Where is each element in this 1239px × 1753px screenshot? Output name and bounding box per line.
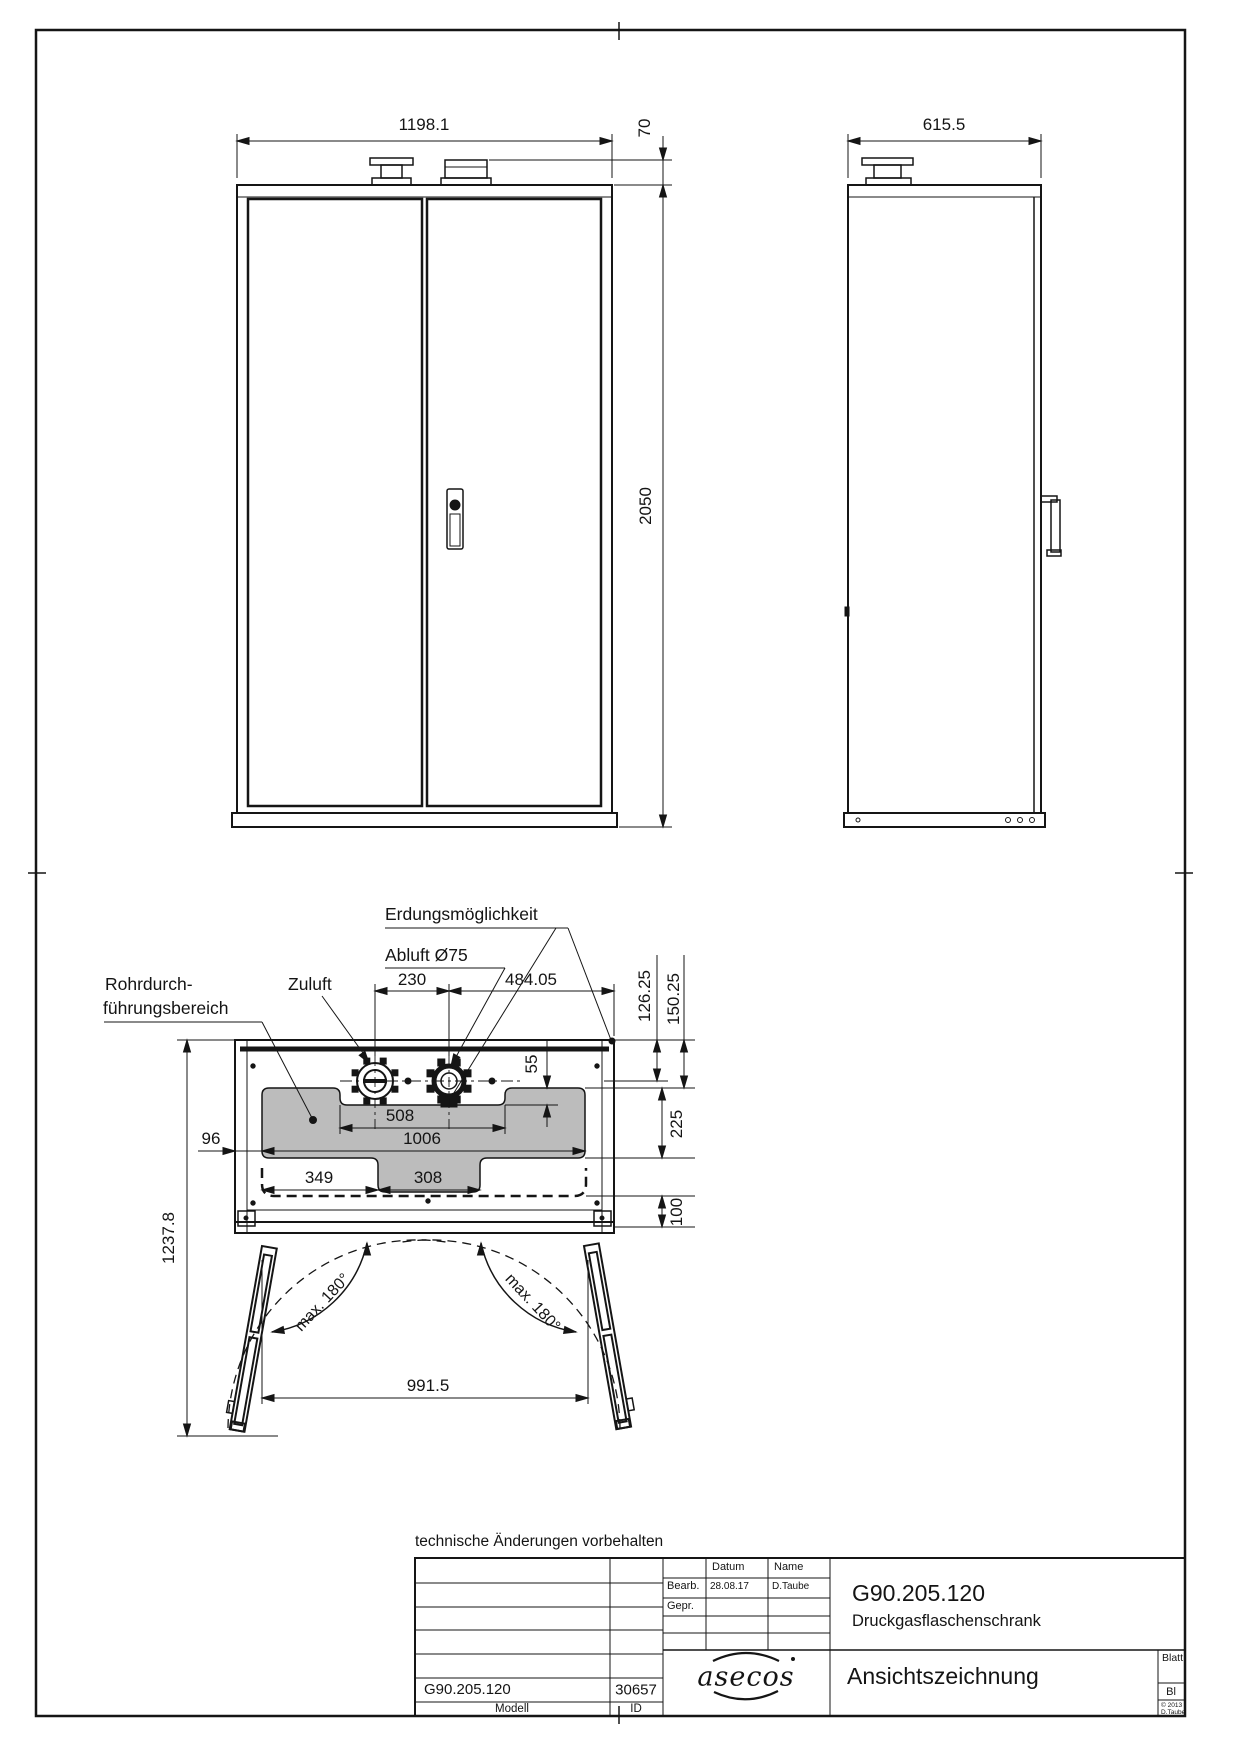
copyright-line2: D.Taube bbox=[1161, 1709, 1185, 1716]
cutout-left-dim: 349 bbox=[305, 1168, 333, 1188]
front-fitting-height-dim: 70 bbox=[635, 119, 655, 138]
back-to-area-dim: 150.25 bbox=[664, 973, 684, 1025]
checked-label: Gepr. bbox=[667, 1600, 694, 1612]
pipe-area-label-line2: führungsbereich bbox=[103, 998, 229, 1019]
product-name: Druckgasflaschenschrank bbox=[852, 1612, 1041, 1631]
duct-to-edge-dim: 484.05 bbox=[505, 970, 557, 990]
supply-label: Zuluft bbox=[288, 974, 332, 995]
drawing-type: Ansichtszeichnung bbox=[847, 1663, 1039, 1690]
side-depth-dim: 615.5 bbox=[923, 115, 966, 135]
total-depth-dim: 1237.8 bbox=[159, 1212, 179, 1264]
area-step-dim: 55 bbox=[522, 1055, 542, 1074]
cutout-width-dim: 508 bbox=[386, 1106, 414, 1126]
sheet-frame bbox=[28, 22, 1193, 1724]
created-label: Bearb. bbox=[667, 1580, 699, 1592]
model-label: Modell bbox=[495, 1703, 529, 1715]
center-to-front-dim: 225 bbox=[667, 1110, 687, 1138]
door-opening-dim: 991.5 bbox=[407, 1376, 450, 1396]
duct-spacing-dim: 230 bbox=[398, 970, 426, 990]
grounding-label: Erdungsmöglichkeit bbox=[385, 904, 538, 925]
drawing-sheet: 1198.1 70 2050 615.5 Erdungsmöglichkeit … bbox=[0, 0, 1239, 1753]
front-zone-dim: 100 bbox=[667, 1198, 687, 1226]
back-to-centerline-dim: 126.25 bbox=[635, 970, 655, 1022]
id-label: ID bbox=[630, 1703, 642, 1715]
date-column-label: Datum bbox=[712, 1561, 744, 1573]
open-door-right bbox=[584, 1242, 637, 1429]
revision-note: technische Änderungen vorbehalten bbox=[415, 1533, 663, 1551]
name-column-label: Name bbox=[774, 1561, 803, 1573]
sheet-value: Bl bbox=[1166, 1686, 1176, 1698]
front-view bbox=[232, 134, 672, 827]
logo-upper-arc bbox=[713, 1653, 779, 1661]
left-margin-dim: 96 bbox=[202, 1129, 221, 1149]
created-by: D.Taube bbox=[772, 1581, 809, 1592]
area-width-dim: 1006 bbox=[403, 1129, 441, 1149]
model-number: G90.205.120 bbox=[852, 1580, 985, 1607]
model-value: G90.205.120 bbox=[424, 1681, 511, 1698]
drawing-geometry bbox=[0, 0, 1239, 1753]
open-door-left bbox=[224, 1245, 277, 1432]
front-height-dim: 2050 bbox=[636, 487, 656, 525]
sheet-label: Blatt bbox=[1162, 1652, 1183, 1664]
cutout-mid-dim: 308 bbox=[414, 1168, 442, 1188]
id-value: 30657 bbox=[615, 1682, 657, 1699]
exhaust-label: Abluft Ø75 bbox=[385, 945, 468, 966]
asecos-logo: asecos bbox=[697, 1662, 794, 1693]
created-date: 28.08.17 bbox=[710, 1581, 749, 1592]
front-width-dim: 1198.1 bbox=[399, 115, 450, 135]
side-view bbox=[844, 134, 1061, 827]
copyright-line1: © 2013 bbox=[1161, 1702, 1182, 1709]
pipe-area-label-line1: Rohrdurch- bbox=[105, 974, 193, 995]
